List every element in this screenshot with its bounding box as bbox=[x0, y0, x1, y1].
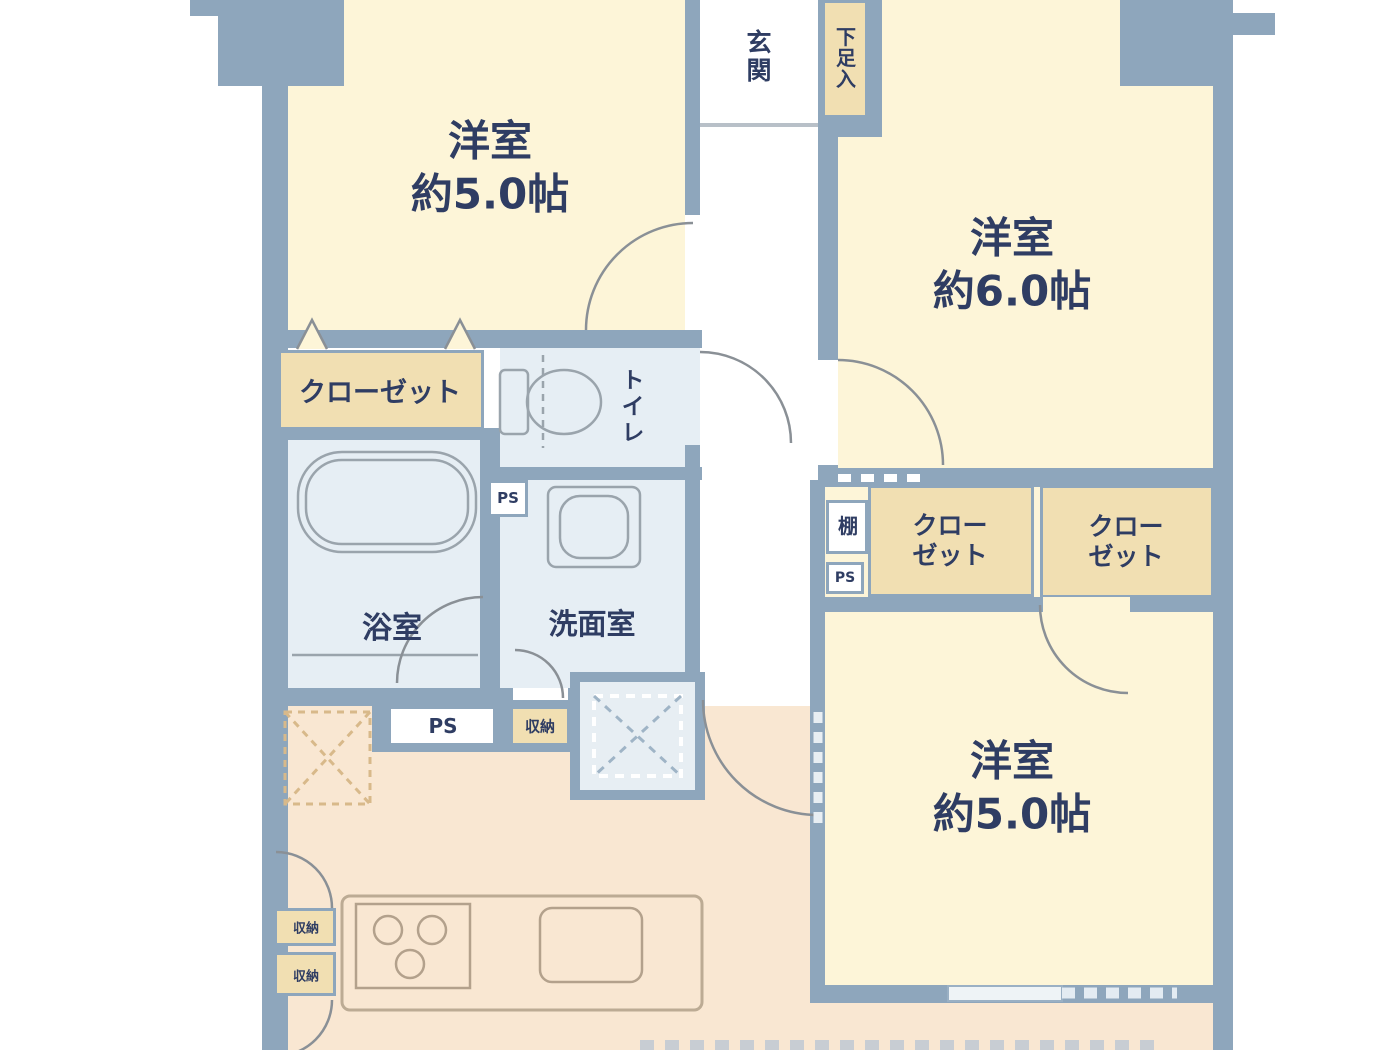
pillar-top-left bbox=[218, 0, 344, 86]
closet-left-line2: ゼット bbox=[912, 541, 987, 571]
storage-left-1-label: 収納 bbox=[293, 918, 319, 937]
room-tl-size: 約5.0帖 bbox=[411, 168, 569, 221]
entrance-label: 玄関 bbox=[739, 29, 775, 85]
wall-right bbox=[1213, 83, 1233, 1050]
closet-right-label: クロー ゼット bbox=[1088, 512, 1163, 572]
closet-left-label: クロー ゼット bbox=[912, 511, 987, 571]
wall-closet-row-left bbox=[810, 480, 825, 1003]
floor-plan: 洋室 約5.0帖 洋室 約6.0帖 洋室 約5.0帖 クローゼット クロー ゼッ… bbox=[0, 0, 1400, 1050]
bath-label: 浴室 bbox=[362, 603, 422, 647]
room-br-label: 洋室 約5.0帖 bbox=[933, 736, 1091, 841]
closet-left-line1: クロー bbox=[912, 511, 987, 541]
wall-hall-left-lower bbox=[685, 445, 700, 688]
bath-floor bbox=[288, 437, 480, 688]
room-tl-name: 洋室 bbox=[411, 116, 569, 169]
notch-top-right bbox=[1233, 13, 1275, 35]
toilet-label: トイレ bbox=[613, 368, 647, 446]
wall-closet-row-bottom-a bbox=[810, 597, 1043, 612]
room-br-size: 約5.0帖 bbox=[933, 788, 1091, 841]
closet-right-line2: ゼット bbox=[1088, 542, 1163, 572]
pillar-top-right bbox=[1120, 0, 1233, 86]
wall-room-br-bottom bbox=[810, 985, 1233, 1003]
wall-room-tr-left-upper bbox=[818, 137, 838, 360]
wall-closet-row-bottom-b bbox=[1130, 597, 1233, 612]
hallway-floor bbox=[700, 0, 818, 706]
toilet-floor bbox=[500, 348, 702, 467]
ps-right-label: PS bbox=[835, 570, 855, 586]
closet-tl-label: クローゼット bbox=[299, 371, 461, 410]
storage-left-2-label: 収納 bbox=[293, 966, 319, 985]
shelf-label: 棚 bbox=[833, 516, 862, 539]
room-tl-label: 洋室 約5.0帖 bbox=[411, 116, 569, 221]
room-tr-size: 約6.0帖 bbox=[933, 265, 1091, 318]
ps-toilet-label: PS bbox=[497, 489, 519, 507]
washroom-label: 洗面室 bbox=[548, 601, 635, 643]
wall-room-tl-bottom bbox=[262, 330, 702, 348]
closet-right-door-gap bbox=[1043, 597, 1130, 612]
storage-mid-label: 収納 bbox=[525, 716, 555, 737]
ldk-floor-bottom bbox=[810, 1003, 1213, 1050]
wall-hall-left-upper bbox=[685, 0, 700, 215]
notch-top-left bbox=[190, 0, 218, 16]
shoe-storage-label: 下足入 bbox=[831, 27, 860, 90]
room-tr-label: 洋室 約6.0帖 bbox=[933, 213, 1091, 318]
ldk-floor bbox=[288, 706, 810, 1050]
wall-toilet-bottom bbox=[480, 467, 702, 480]
wall-left bbox=[262, 80, 288, 1050]
room-br-name: 洋室 bbox=[933, 736, 1091, 789]
room-tr-name: 洋室 bbox=[933, 213, 1091, 266]
ps-kitchen-label: PS bbox=[428, 714, 457, 738]
closet-right-line1: クロー bbox=[1088, 512, 1163, 542]
